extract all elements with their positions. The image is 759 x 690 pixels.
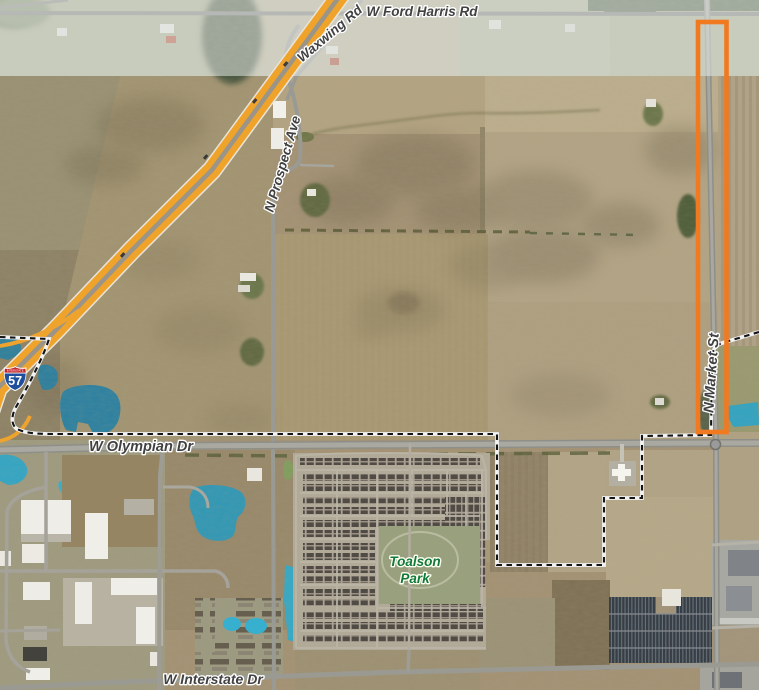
svg-text:Toalson: Toalson: [389, 554, 440, 569]
svg-text:57: 57: [8, 374, 22, 388]
svg-text:W Ford Harris Rd: W Ford Harris Rd: [366, 4, 478, 19]
svg-text:W Interstate Dr: W Interstate Dr: [163, 671, 264, 687]
svg-text:INTERSTATE: INTERSTATE: [7, 369, 24, 373]
svg-text:Park: Park: [400, 571, 431, 586]
svg-text:W Olympian Dr: W Olympian Dr: [89, 439, 194, 455]
